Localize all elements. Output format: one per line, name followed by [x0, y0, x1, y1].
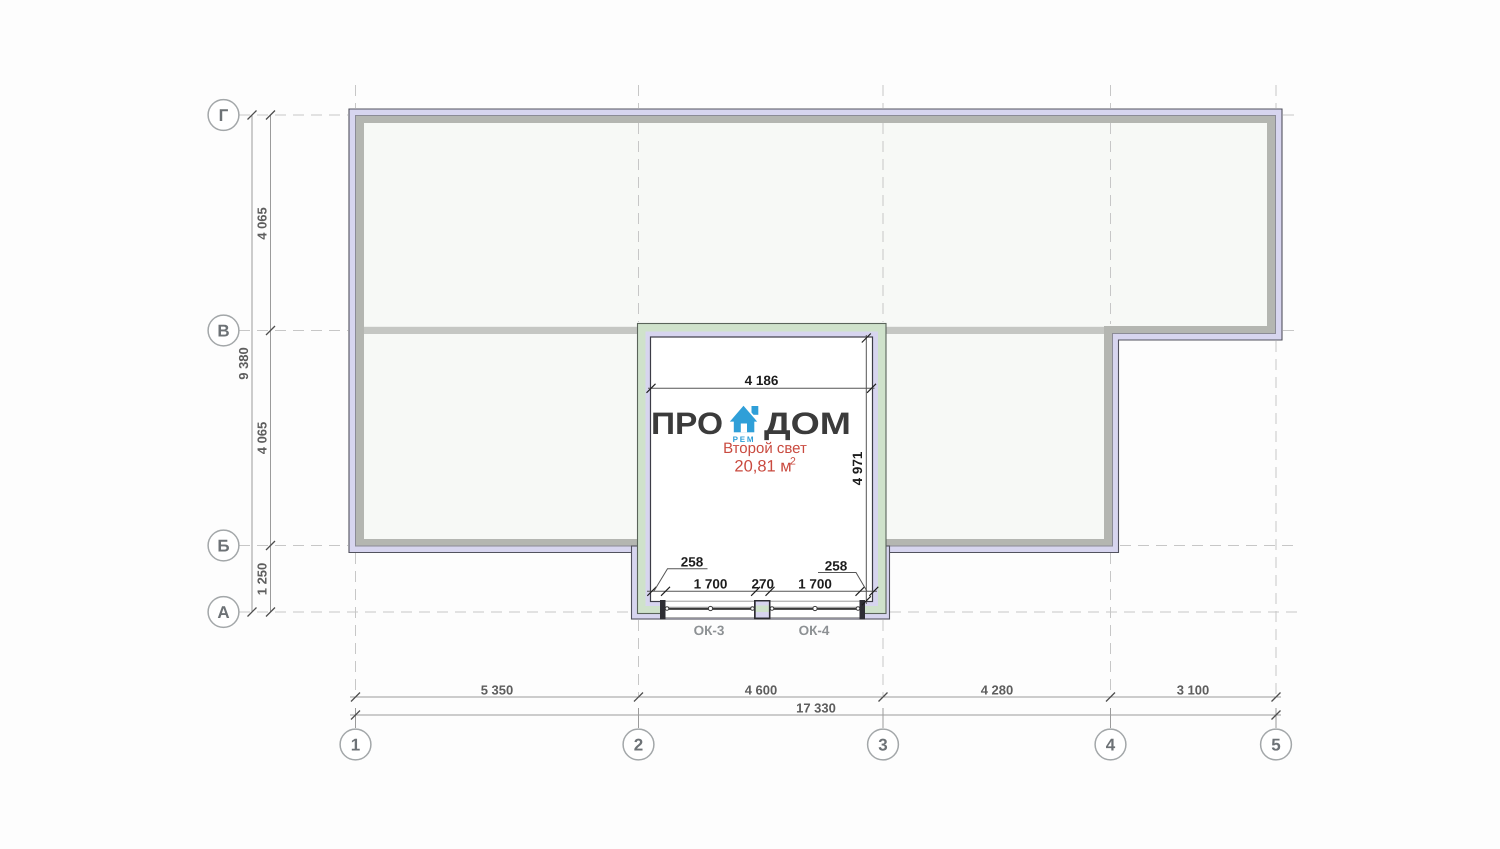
svg-text:ОК-4: ОК-4: [799, 623, 830, 638]
svg-text:17 330: 17 330: [796, 701, 836, 716]
svg-text:Второй свет: Второй свет: [723, 440, 807, 457]
svg-text:3: 3: [878, 736, 887, 755]
svg-text:4: 4: [1106, 736, 1116, 755]
svg-text:ОК-3: ОК-3: [694, 623, 725, 638]
svg-text:1 700: 1 700: [798, 577, 832, 592]
svg-text:Б: Б: [217, 537, 229, 556]
svg-text:ДОМ: ДОМ: [764, 406, 851, 441]
svg-text:1 700: 1 700: [694, 577, 728, 592]
svg-text:258: 258: [681, 555, 704, 570]
svg-text:4 971: 4 971: [850, 451, 865, 485]
svg-text:Г: Г: [219, 106, 229, 125]
svg-text:5: 5: [1271, 736, 1280, 755]
svg-text:258: 258: [825, 559, 848, 574]
svg-text:4 280: 4 280: [981, 683, 1014, 698]
svg-text:2: 2: [634, 736, 643, 755]
svg-text:3 100: 3 100: [1177, 683, 1210, 698]
svg-text:5 350: 5 350: [481, 683, 514, 698]
svg-text:4 186: 4 186: [745, 373, 779, 388]
svg-text:А: А: [217, 603, 229, 622]
svg-text:2: 2: [790, 456, 796, 468]
svg-text:1: 1: [351, 736, 360, 755]
svg-text:1 250: 1 250: [255, 563, 270, 596]
svg-text:9 380: 9 380: [236, 347, 251, 380]
svg-text:В: В: [217, 322, 229, 341]
svg-text:ПРО: ПРО: [651, 406, 723, 441]
svg-text:270: 270: [752, 577, 775, 592]
svg-text:4 065: 4 065: [255, 207, 270, 240]
svg-text:20,81 м: 20,81 м: [734, 458, 791, 476]
svg-text:4 065: 4 065: [255, 422, 270, 455]
svg-text:4 600: 4 600: [745, 683, 778, 698]
